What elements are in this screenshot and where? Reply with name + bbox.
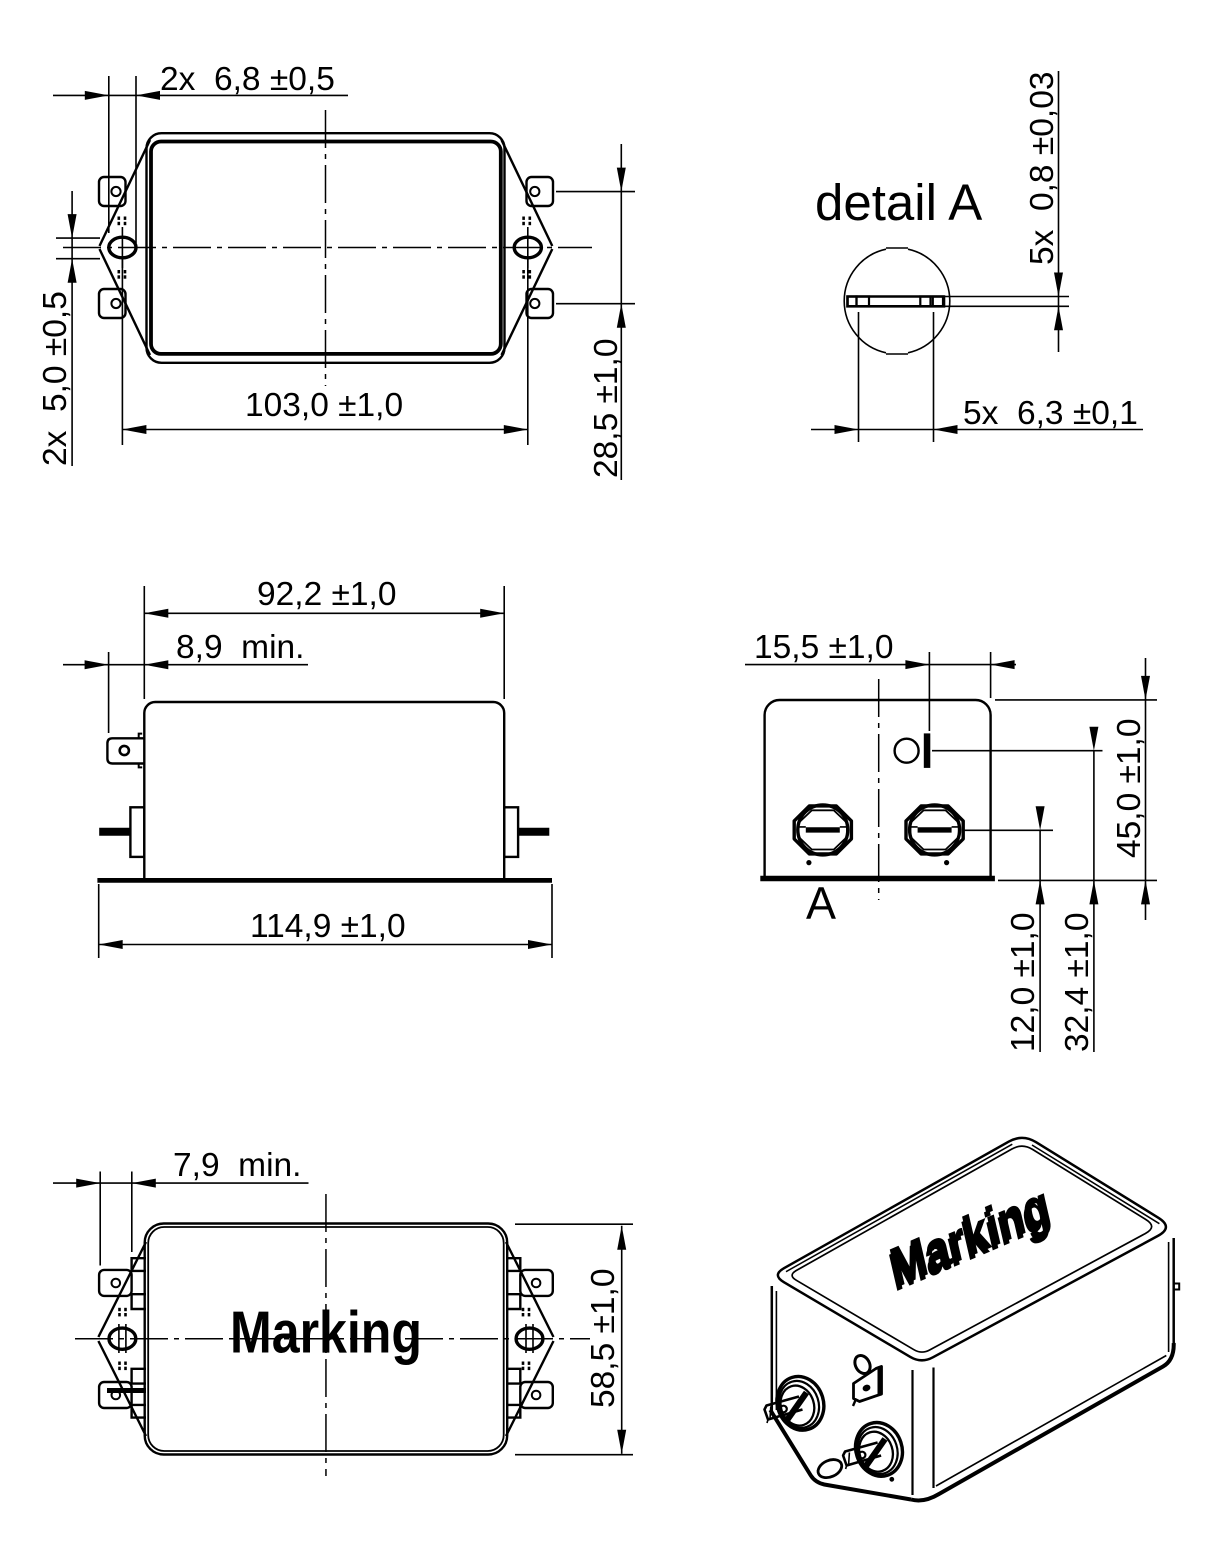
svg-text:7,9 min.: 7,9 min.	[173, 1147, 301, 1184]
svg-text:A: A	[806, 878, 836, 929]
svg-text:5x 6,3 ±0,1: 5x 6,3 ±0,1	[963, 395, 1138, 432]
svg-text:28,5 ±1,0: 28,5 ±1,0	[588, 339, 625, 478]
svg-text:92,2 ±1,0: 92,2 ±1,0	[257, 576, 396, 613]
svg-text:detail A: detail A	[815, 174, 982, 231]
svg-text:103,0 ±1,0: 103,0 ±1,0	[245, 387, 403, 424]
svg-text:114,9 ±1,0: 114,9 ±1,0	[250, 908, 406, 945]
svg-text:45,0 ±1,0: 45,0 ±1,0	[1111, 719, 1148, 858]
svg-text:2x 6,8 ±0,5: 2x 6,8 ±0,5	[160, 61, 335, 98]
svg-text:15,5 ±1,0: 15,5 ±1,0	[754, 629, 893, 666]
svg-text:8,9 min.: 8,9 min.	[176, 629, 304, 666]
svg-text:32,4 ±1,0: 32,4 ±1,0	[1059, 913, 1096, 1052]
svg-text:58,5 ±1,0: 58,5 ±1,0	[585, 1269, 622, 1408]
svg-text:12,0 ±1,0: 12,0 ±1,0	[1005, 913, 1042, 1052]
svg-text:5x 0,8 ±0,03: 5x 0,8 ±0,03	[1024, 72, 1061, 265]
svg-text:Marking: Marking	[230, 1300, 422, 1366]
svg-text:2x 5,0 ±0,5: 2x 5,0 ±0,5	[37, 291, 74, 466]
